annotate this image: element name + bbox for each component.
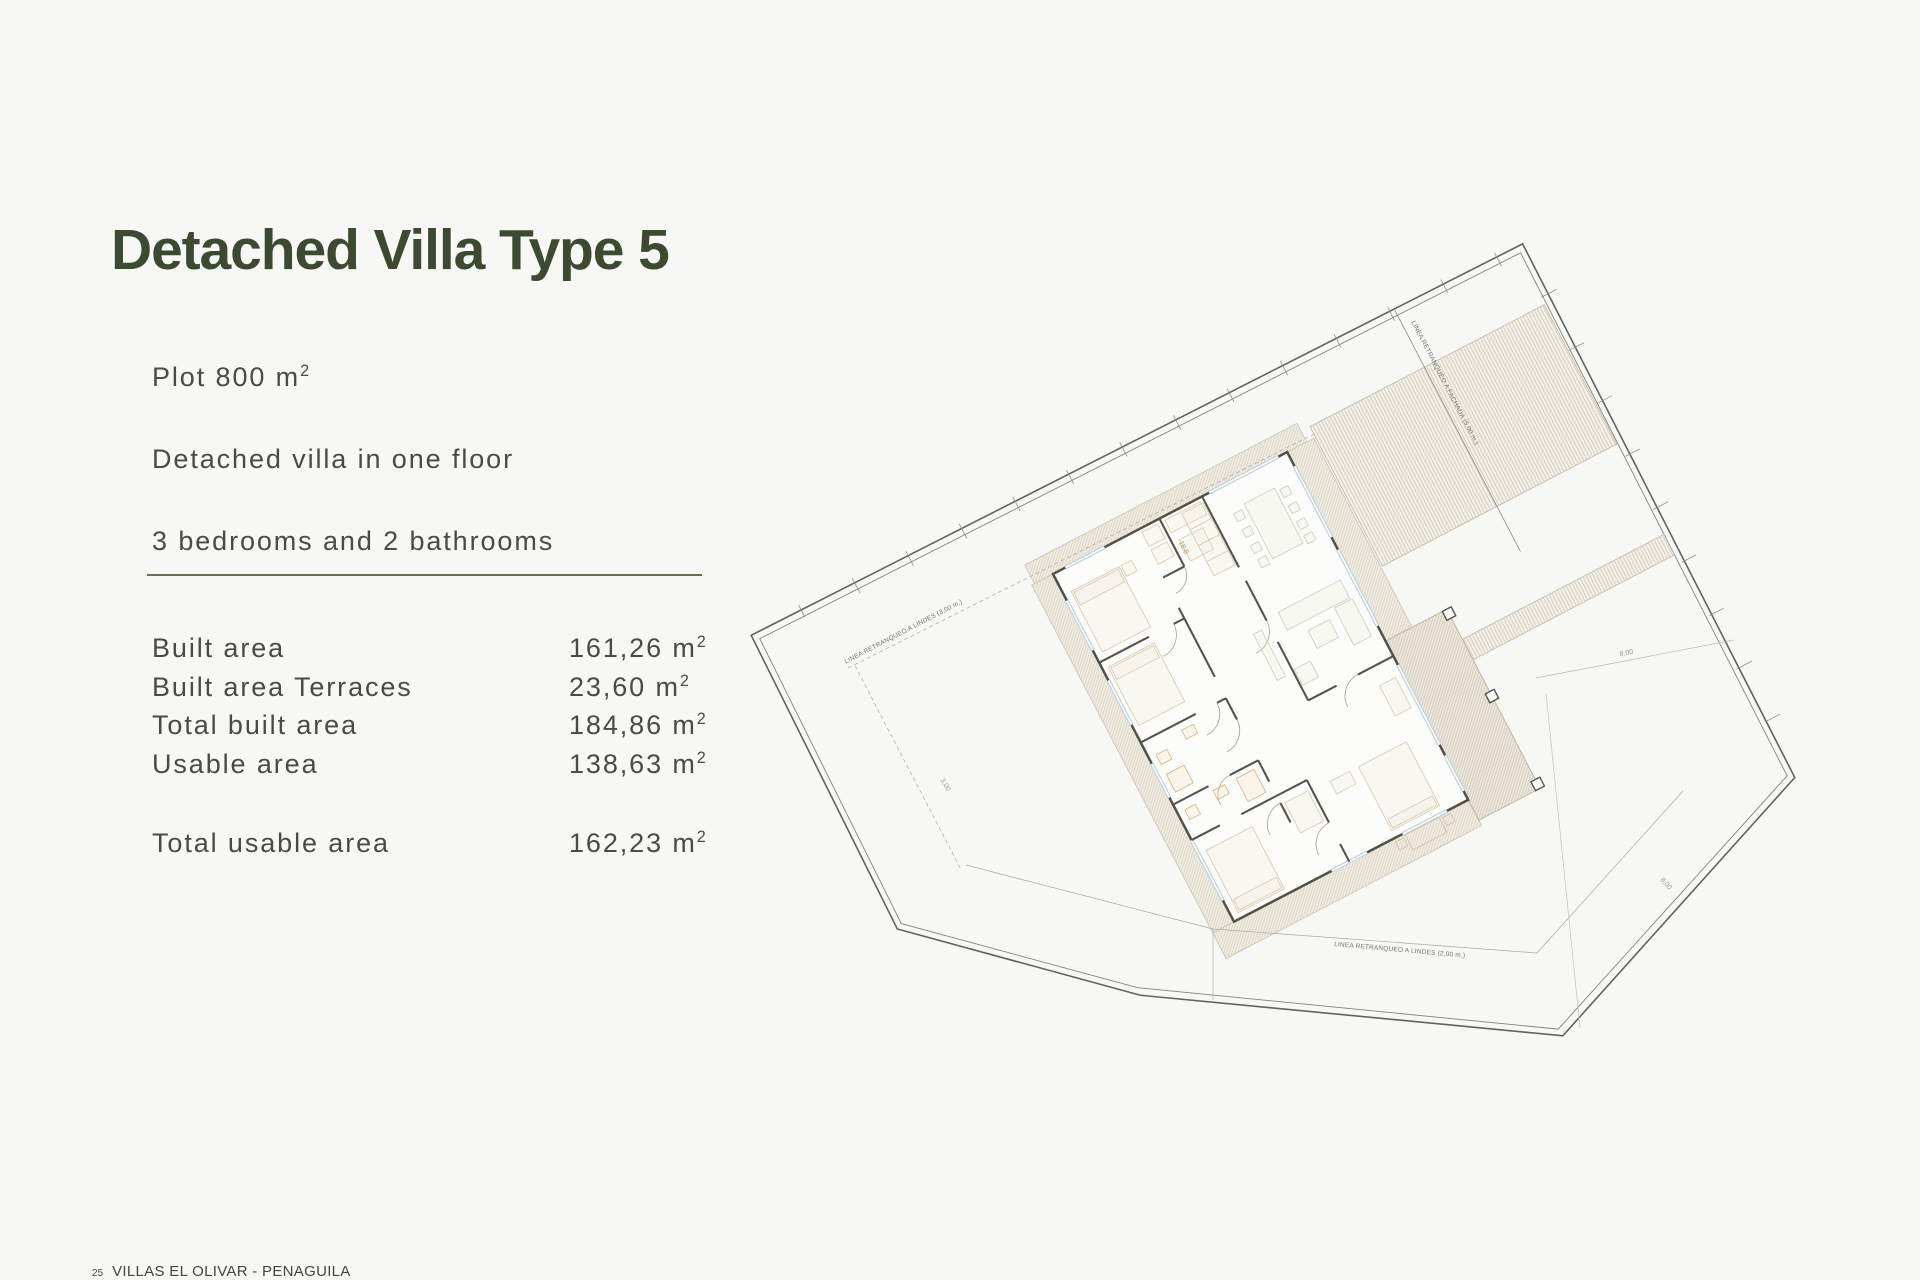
svg-text:LINEA RETRANQUEO A LINDES (2,0: LINEA RETRANQUEO A LINDES (2,00 m.) [1334, 941, 1466, 959]
svg-text:8,00: 8,00 [1619, 649, 1634, 658]
svg-text:3,00: 3,00 [938, 777, 951, 792]
svg-text:LINEA RETRANQUEO A LINDES (3,0: LINEA RETRANQUEO A LINDES (3,00 m.) [844, 598, 964, 665]
svg-text:8,00: 8,00 [1659, 877, 1673, 892]
